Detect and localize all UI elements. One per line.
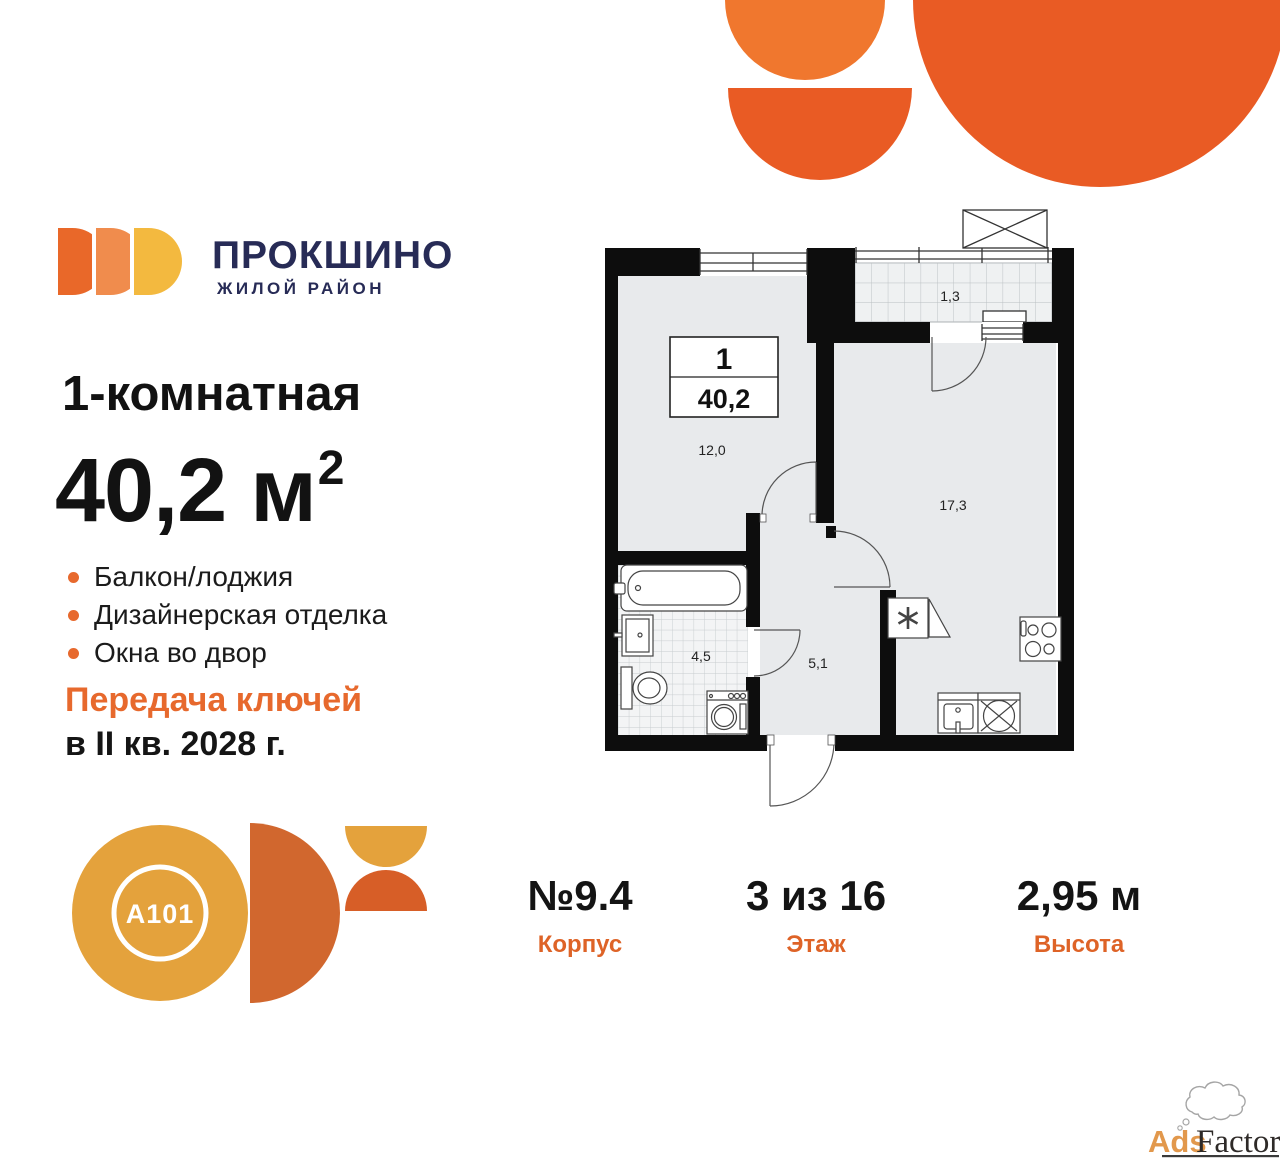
district-logo-name: ПРОКШИНО — [212, 234, 453, 278]
area-exponent: 2 — [318, 442, 344, 495]
floor-value: 3 из 16 — [706, 872, 926, 920]
height-value: 2,95 м — [969, 872, 1189, 920]
apartment-area: 40,2 м2 — [55, 440, 341, 543]
watermark: Ads Factory — [1146, 1078, 1280, 1160]
district-logo-tagline: ЖИЛОЙ РАЙОН — [217, 279, 385, 299]
detail-building: №9.4 Корпус — [470, 872, 690, 959]
room-label-bedroom: 12,0 — [698, 442, 725, 458]
deco-semicircle-large — [913, 0, 1280, 187]
logo-petal-icon — [134, 228, 182, 295]
detail-height: 2,95 м Высота — [969, 872, 1189, 959]
feature-label: Балкон/лоджия — [94, 561, 293, 593]
handover-date: в II кв. 2028 г. — [65, 725, 286, 764]
deco-semicircle-medium — [728, 88, 912, 180]
watermark-underline — [1162, 1155, 1279, 1157]
handover-title: Передача ключей — [65, 681, 362, 720]
a101-small-halfdisc-icon — [345, 870, 427, 911]
bullet-dot-icon — [68, 610, 79, 621]
a101-small-halfdisc-icon — [345, 826, 427, 867]
apartment-type-title: 1-комнатная — [62, 366, 361, 422]
building-value: №9.4 — [470, 872, 690, 920]
plan-legend: 1 40,2 — [670, 337, 778, 417]
deco-semicircle-small — [725, 0, 885, 80]
room-label-hallway: 5,1 — [808, 655, 828, 671]
bullet-dot-icon — [68, 648, 79, 659]
height-label: Высота — [969, 931, 1189, 959]
a101-logo-text: A101 — [126, 899, 195, 929]
legend-total-area: 40,2 — [698, 384, 751, 414]
feature-item: Дизайнерская отделка — [68, 596, 387, 634]
feature-label: Дизайнерская отделка — [94, 599, 387, 631]
watermark-factory-text: Factory — [1196, 1124, 1280, 1160]
feature-list: Балкон/лоджия Дизайнерская отделка Окна … — [68, 558, 387, 672]
smoke-cloud-icon — [1186, 1082, 1245, 1119]
room-label-bathroom: 4,5 — [691, 648, 711, 664]
floor-plan: 1 40,2 1,3 12,0 17,3 4,5 5,1 — [600, 200, 1080, 825]
legend-room-count: 1 — [716, 343, 733, 376]
bullet-dot-icon — [68, 572, 79, 583]
room-label-living: 17,3 — [939, 497, 966, 513]
feature-item: Балкон/лоджия — [68, 558, 387, 596]
feature-label: Окна во двор — [94, 637, 267, 669]
floor-label: Этаж — [706, 931, 926, 959]
feature-item: Окна во двор — [68, 634, 387, 672]
detail-floor: 3 из 16 Этаж — [706, 872, 926, 959]
room-label-balcony: 1,3 — [940, 288, 960, 304]
building-label: Корпус — [470, 931, 690, 959]
area-unit: м — [250, 441, 316, 541]
toilet-icon — [621, 667, 632, 709]
a101-halfdisc-icon — [250, 823, 340, 1003]
area-value: 40,2 — [55, 441, 226, 541]
developer-logo: A101 — [60, 818, 440, 1013]
